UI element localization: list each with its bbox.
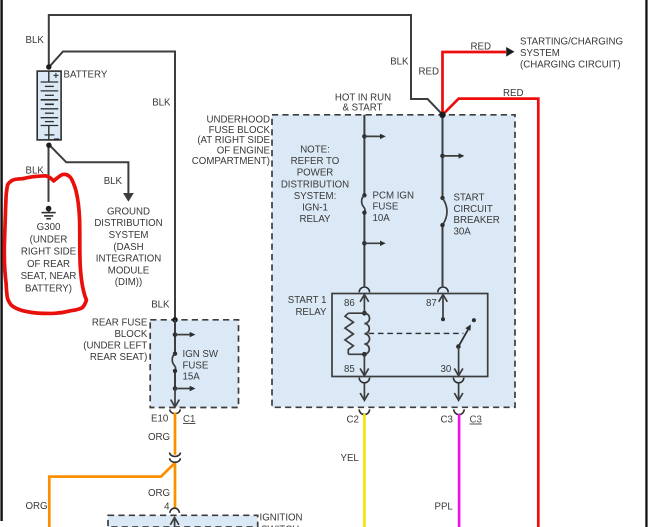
svg-text:RELAY: RELAY [295, 307, 327, 318]
svg-text:START: START [454, 192, 485, 203]
svg-text:30: 30 [441, 364, 452, 375]
svg-text:(UNDER LEFT: (UNDER LEFT [83, 341, 147, 352]
svg-text:BLK: BLK [152, 97, 171, 108]
svg-text:BATTERY): BATTERY) [25, 284, 72, 295]
svg-text:IGN-1: IGN-1 [302, 203, 328, 214]
svg-text:(DIM)): (DIM)) [115, 277, 142, 288]
svg-text:& START: & START [342, 103, 382, 114]
svg-text:C3: C3 [441, 415, 453, 426]
svg-text:PPL: PPL [435, 502, 454, 513]
svg-text:OF REAR: OF REAR [27, 259, 70, 270]
svg-text:FUSE: FUSE [373, 202, 399, 213]
svg-text:BLK: BLK [104, 176, 123, 187]
svg-text:87: 87 [426, 298, 437, 309]
svg-text:STARTING/CHARGING: STARTING/CHARGING [520, 36, 623, 47]
svg-text:MODULE: MODULE [108, 265, 150, 276]
svg-text:C1: C1 [183, 414, 195, 425]
svg-text:–: – [54, 133, 60, 145]
svg-text:RED: RED [503, 88, 523, 99]
svg-text:SYSTEM:: SYSTEM: [294, 191, 337, 202]
svg-text:SYSTEM: SYSTEM [520, 48, 560, 59]
svg-text:NOTE:: NOTE: [300, 145, 330, 156]
svg-text:(UNDER: (UNDER [30, 234, 68, 245]
svg-text:REAR SEAT): REAR SEAT) [90, 352, 147, 363]
svg-text:DISTRIBUTION: DISTRIBUTION [281, 179, 349, 190]
svg-text:BLOCK: BLOCK [114, 329, 147, 340]
svg-text:15A: 15A [183, 372, 201, 383]
svg-text:+: + [53, 71, 59, 82]
svg-text:ORG: ORG [148, 488, 170, 499]
svg-text:DISTRIBUTION: DISTRIBUTION [94, 218, 162, 229]
svg-text:GROUND: GROUND [107, 206, 150, 217]
svg-text:REFER TO: REFER TO [291, 156, 340, 167]
svg-text:CIRCUIT: CIRCUIT [454, 204, 493, 215]
svg-text:YEL: YEL [341, 453, 360, 464]
svg-text:RED: RED [471, 42, 491, 53]
svg-text:86: 86 [344, 298, 355, 309]
svg-text:G300: G300 [37, 222, 61, 233]
svg-text:START 1: START 1 [288, 295, 327, 306]
svg-text:PCM IGN: PCM IGN [373, 191, 414, 202]
svg-text:E10: E10 [151, 413, 169, 424]
svg-text:OF ENGINE: OF ENGINE [217, 145, 271, 156]
svg-text:85: 85 [344, 364, 355, 375]
svg-text:RELAY: RELAY [299, 214, 331, 225]
svg-text:C2: C2 [347, 415, 359, 426]
svg-text:10A: 10A [373, 213, 391, 224]
svg-text:IGN SW: IGN SW [183, 349, 219, 360]
svg-text:POWER: POWER [297, 168, 334, 179]
svg-text:SYSTEM: SYSTEM [109, 230, 149, 241]
svg-text:BREAKER: BREAKER [454, 215, 500, 226]
svg-text:RIGHT SIDE: RIGHT SIDE [21, 247, 77, 258]
svg-text:C3: C3 [470, 415, 482, 426]
svg-text:ORG: ORG [26, 501, 48, 512]
svg-text:ORG: ORG [148, 432, 170, 443]
svg-text:BLK: BLK [26, 35, 45, 46]
svg-text:RED: RED [419, 67, 439, 78]
svg-text:IGNITION: IGNITION [260, 513, 303, 524]
svg-text:FUSE: FUSE [183, 360, 209, 371]
svg-text:SEAT, NEAR: SEAT, NEAR [21, 271, 77, 282]
svg-text:4: 4 [164, 502, 170, 513]
svg-text:BLK: BLK [390, 57, 409, 68]
svg-text:BLK: BLK [151, 300, 170, 311]
svg-text:30A: 30A [454, 227, 472, 238]
svg-text:(CHARGING CIRCUIT): (CHARGING CIRCUIT) [520, 60, 621, 71]
svg-text:(DASH: (DASH [113, 242, 143, 253]
svg-text:COMPARTMENT): COMPARTMENT) [192, 156, 270, 167]
svg-text:BATTERY: BATTERY [64, 70, 108, 81]
svg-text:INTEGRATION: INTEGRATION [96, 254, 161, 265]
svg-text:REAR FUSE: REAR FUSE [92, 317, 148, 328]
